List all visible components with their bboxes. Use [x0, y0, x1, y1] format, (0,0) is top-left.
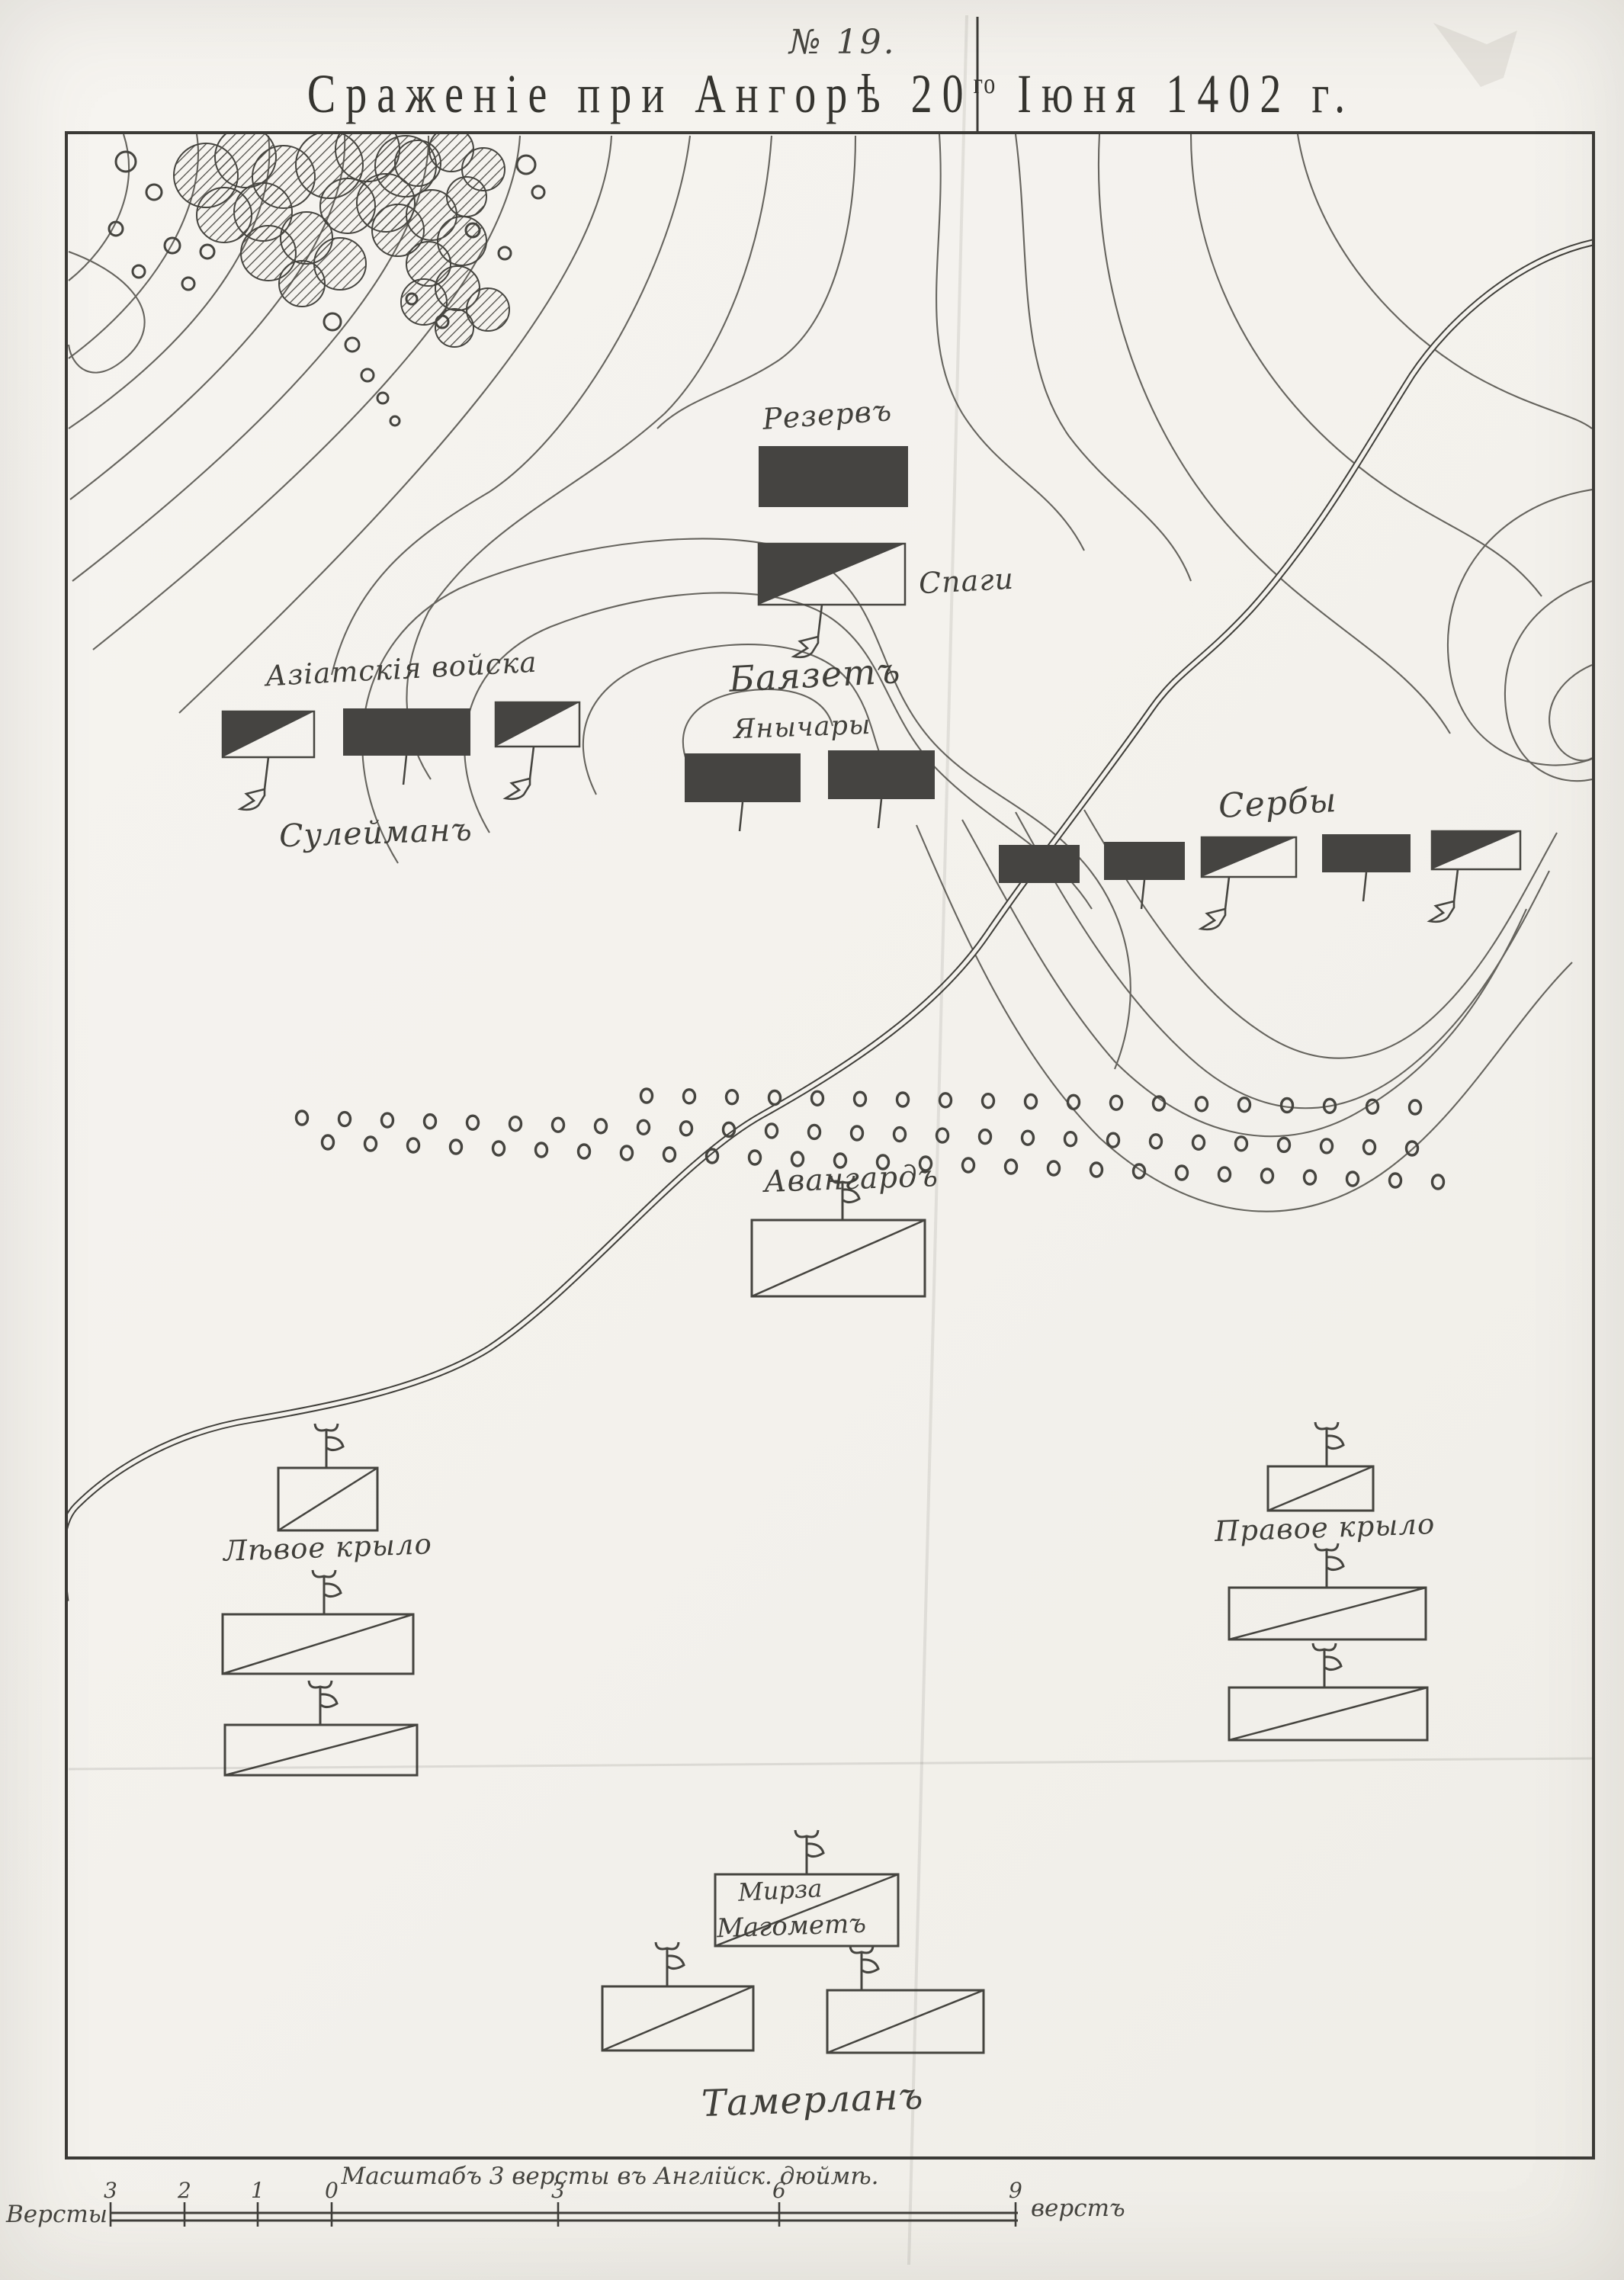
unit-right-wing-3	[1229, 1643, 1427, 1740]
unit-janissaries-1	[685, 753, 801, 831]
label-janissaries: Янычары	[733, 710, 871, 745]
pennant-flag-icon	[240, 757, 268, 810]
unit-tick-mark	[1363, 872, 1366, 901]
unit-serbs-1	[999, 845, 1080, 883]
scale-right-label: верстъ	[1031, 2195, 1125, 2222]
standard-flag-icon	[850, 1946, 878, 1990]
scale-tick-number: 0	[325, 2178, 339, 2203]
paper-crease-mark	[1433, 23, 1517, 87]
tree-clump-icons	[174, 117, 509, 347]
unit-right-wing-2	[1229, 1543, 1426, 1639]
scale-tick-number: 1	[251, 2178, 265, 2203]
scale-caption: Масштабъ 3 версты въ Англійск. дюймѣ.	[335, 2163, 884, 2190]
label-suleiman: Сулейманъ	[278, 811, 473, 855]
pennant-flag-icon	[794, 605, 822, 657]
scale-bar	[111, 2202, 1018, 2227]
standard-flag-icon	[1315, 1422, 1343, 1466]
mirza-line2: Магометъ	[716, 1909, 866, 1944]
unit-asian-3	[496, 702, 579, 799]
scanned-map-page: № 19. Сраженіе при Ангорѣ 20го Іюня 1402…	[0, 0, 1624, 2280]
standard-flag-icon	[1313, 1643, 1341, 1688]
forest-area	[109, 117, 544, 425]
scale-tick-number: 9	[1009, 2178, 1022, 2203]
label-tamerlane: Тамерланъ	[701, 2075, 924, 2125]
unit-asian-2	[343, 708, 470, 785]
standard-flag-icon	[656, 1942, 684, 1986]
fold-crease-horizontal	[69, 1758, 1594, 1769]
standard-flag-icon	[313, 1570, 341, 1614]
mirza-mahomet-box-text: Мирза Магометъ	[715, 1874, 898, 1946]
unit-serbs-3	[1201, 837, 1296, 930]
unit-serbs-2	[1104, 842, 1185, 909]
map-title-pre: Сраженіе при Ангорѣ 20	[307, 64, 974, 124]
standard-flag-icon	[309, 1681, 337, 1725]
unit-left-wing-1	[278, 1424, 377, 1530]
pennant-flag-icon	[1430, 869, 1458, 922]
fold-crease-vertical	[909, 15, 967, 2265]
label-serbs: Сербы	[1218, 781, 1338, 826]
map-title-superscript: го	[974, 68, 997, 100]
pennant-flag-icon	[1201, 877, 1229, 930]
unit-janissaries-2	[828, 750, 935, 828]
scale-left-label: Версты	[6, 2201, 108, 2228]
unit-left-wing-3	[225, 1681, 417, 1775]
unit-tick-mark	[878, 799, 881, 828]
scale-tick-number: 2	[178, 2178, 191, 2203]
standard-flag-icon	[315, 1424, 343, 1468]
unit-reserve-corps	[759, 446, 908, 507]
map-title: Сраженіе при Ангорѣ 20го Іюня 1402 г.	[297, 63, 1365, 126]
scale-tick-number: 6	[772, 2178, 786, 2203]
scale-ticks	[111, 2202, 1016, 2227]
map-title-post: Іюня 1402 г.	[997, 64, 1355, 124]
label-avangard: Авангардъ	[763, 1159, 939, 1199]
map-number: № 19.	[789, 23, 957, 62]
scale-tick-number: 3	[551, 2178, 565, 2203]
unit-tick-mark	[403, 756, 406, 785]
unit-tamerlane-1	[602, 1942, 753, 2050]
unit-tick-mark	[740, 802, 743, 831]
label-spahis: Спаги	[918, 562, 1015, 600]
mirza-line1: Мирза	[737, 1874, 823, 1907]
unit-spahis	[759, 544, 905, 657]
unit-serbs-4	[1322, 834, 1411, 901]
unit-right-wing-1	[1268, 1422, 1373, 1511]
unit-tamerlane-2	[827, 1946, 984, 2053]
scale-tick-number: 3	[104, 2178, 117, 2203]
unit-serbs-5	[1430, 831, 1520, 922]
pennant-flag-icon	[505, 747, 534, 799]
unit-left-wing-2	[223, 1570, 413, 1674]
standard-flag-icon	[1315, 1543, 1343, 1588]
standard-flag-icon	[795, 1830, 823, 1874]
unit-asian-1	[223, 711, 314, 810]
